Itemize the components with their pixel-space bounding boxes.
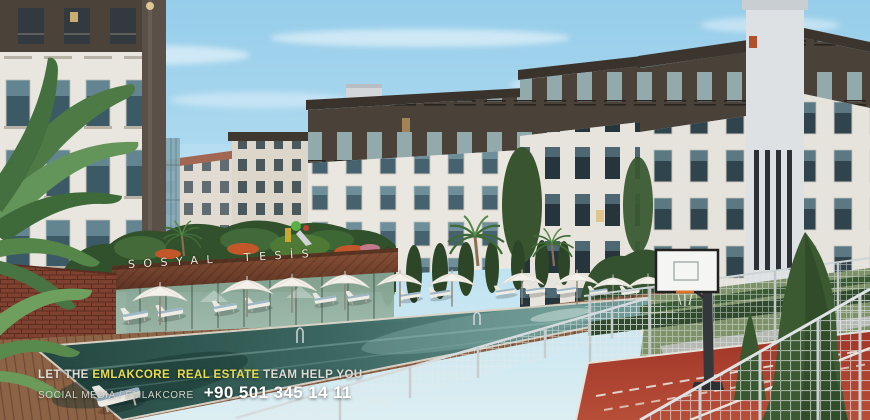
ad-overlay: LET THE EMLAKCORE REAL ESTATE TEAM HELP … — [38, 369, 363, 403]
social-media-handle: SOCIAL MEDIA / EMLAKCORE — [38, 390, 194, 401]
brand-name: EMLAKCORE REAL ESTATE — [92, 369, 259, 381]
backboard — [656, 250, 718, 292]
ad-tagline: LET THE EMLAKCORE REAL ESTATE TEAM HELP … — [38, 369, 363, 381]
tagline-prefix: LET THE — [38, 369, 92, 381]
render-canvas: SOSYAL TESİS LET THE EMLAKCORE REAL ESTA… — [0, 0, 870, 420]
phone-number: +90 501 345 14 11 — [204, 383, 352, 403]
ad-contact-line: SOCIAL MEDIA / EMLAKCORE +90 501 345 14 … — [38, 383, 363, 403]
scene-render — [0, 0, 870, 420]
tagline-suffix: TEAM HELP YOU — [260, 369, 363, 381]
